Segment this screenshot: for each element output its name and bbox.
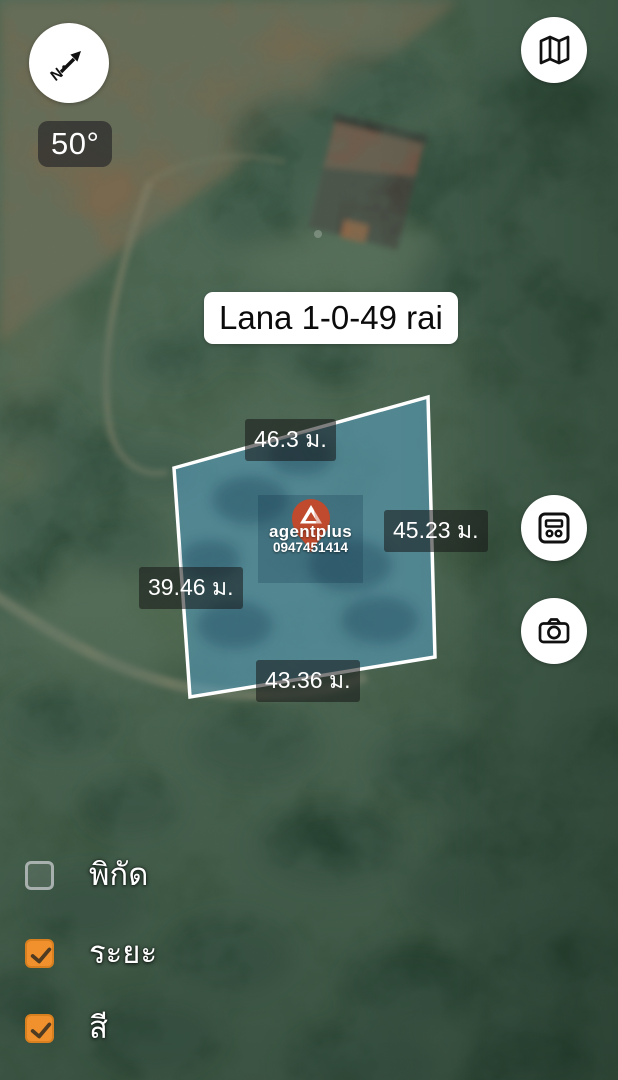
map-icon bbox=[536, 33, 573, 67]
checkmark-icon bbox=[28, 942, 54, 968]
measurement-right: 45.23 ม. bbox=[384, 510, 488, 552]
watermark-phone: 0947451414 bbox=[258, 540, 363, 555]
bearing-badge: 50° bbox=[38, 121, 112, 167]
color-checkbox[interactable] bbox=[25, 1014, 54, 1043]
distance-label: ระยะ bbox=[89, 937, 157, 969]
measurement-left: 39.46 ม. bbox=[139, 567, 243, 609]
checkmark-icon bbox=[28, 1017, 54, 1043]
layer-toggle-distance[interactable]: ระยะ bbox=[25, 937, 157, 969]
color-label: สี bbox=[89, 1012, 108, 1044]
plot-title-label[interactable]: Lana 1-0-49 rai bbox=[204, 292, 458, 344]
compass-button[interactable]: N bbox=[29, 23, 109, 103]
plot-info-button[interactable] bbox=[521, 495, 587, 561]
camera-icon bbox=[536, 613, 572, 649]
compass-north-arrow-icon: N bbox=[45, 39, 93, 87]
calculator-icon bbox=[536, 510, 572, 546]
watermark: agentplus 0947451414 bbox=[258, 495, 363, 583]
coordinates-label: พิกัด bbox=[89, 859, 148, 891]
layer-toggle-color[interactable]: สี bbox=[25, 1012, 108, 1044]
layer-toggle-coordinates[interactable]: พิกัด bbox=[25, 859, 148, 891]
watermark-brand: agentplus bbox=[258, 522, 363, 542]
camera-button[interactable] bbox=[521, 598, 587, 664]
coordinates-checkbox[interactable] bbox=[25, 861, 54, 890]
measurement-bottom: 43.36 ม. bbox=[256, 660, 360, 702]
distance-checkbox[interactable] bbox=[25, 939, 54, 968]
map-type-button[interactable] bbox=[521, 17, 587, 83]
map-screen: N 50° Lana 1-0-49 rai 46.3 ม. 45.23 ม. 3… bbox=[0, 0, 618, 1080]
measurement-top: 46.3 ม. bbox=[245, 419, 336, 461]
